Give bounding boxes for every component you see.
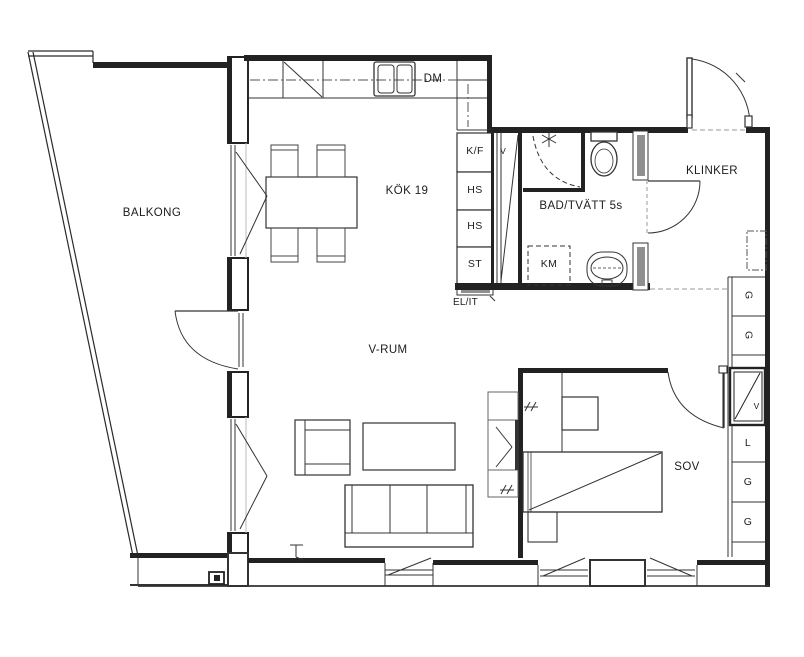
balcony-railing (28, 51, 138, 556)
hallway-floor-label: KLINKER (662, 166, 762, 178)
cleaning-cabinet-label: ST (457, 259, 493, 270)
balcony-door (175, 311, 243, 369)
washbasin (587, 252, 627, 286)
hallway-markings (650, 231, 766, 289)
kitchen-counter (248, 61, 491, 130)
floorplan-drawing (0, 0, 804, 657)
closet-label-g4: G (738, 517, 758, 528)
dining-set (266, 145, 357, 262)
balcony-room-label: BALKONG (102, 208, 202, 220)
dishwasher-label: DM (418, 74, 448, 86)
exterior-walls (244, 55, 770, 587)
kitchen-room-label: KÖK 19 (357, 186, 457, 198)
washing-machine-label: KM (529, 259, 569, 270)
radiator-symbols (290, 402, 538, 560)
bathroom-door (647, 180, 700, 234)
bathroom-room-label: BAD/TVÄTT 5s (521, 201, 641, 213)
tall-cabinet-label-2: HS (457, 221, 493, 232)
kitchen-vent-label: V (497, 147, 509, 156)
west-windows (231, 143, 267, 533)
closet-label-l: L (738, 438, 758, 449)
bedroom-room-label: SOV (637, 462, 737, 474)
fridge-freezer-label: K/F (457, 146, 493, 157)
closet-label-g1: G (743, 285, 754, 305)
floorplan: BALKONG KÖK 19 DM K/F HS HS ST V EL/IT B… (0, 0, 804, 657)
kitchen-sink (374, 62, 415, 96)
shower-head-icon (542, 131, 556, 147)
vent-shaft-label: V (750, 402, 763, 411)
bedroom-furniture (523, 373, 662, 542)
closet-label-g3: G (738, 477, 758, 488)
toilet (591, 132, 617, 176)
balcony-walls (93, 62, 229, 585)
vent-shaft-box (719, 366, 765, 427)
sofa (345, 485, 473, 547)
tall-cabinet-label-1: HS (457, 185, 493, 196)
entrance-door (687, 58, 752, 130)
balcony-drain (209, 572, 224, 584)
electrical-label: EL/IT (453, 298, 503, 308)
closet-label-g2: G (743, 325, 754, 345)
coffee-table (363, 423, 455, 470)
living-room-wardrobe (488, 392, 519, 497)
south-windows (385, 558, 697, 586)
living-room-label: V-RUM (338, 345, 438, 357)
armchair (295, 420, 350, 475)
bedroom-door (668, 372, 724, 428)
